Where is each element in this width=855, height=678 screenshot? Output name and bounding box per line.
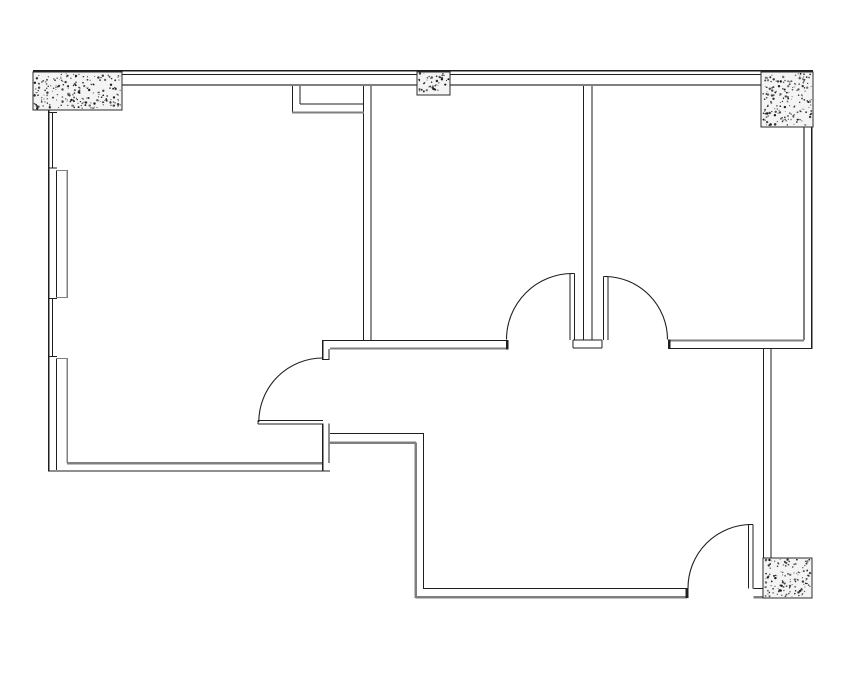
stipple-dot [767,590,769,592]
stipple-dot [102,94,104,96]
stipple-dot [772,592,773,593]
stipple-dot [798,571,800,573]
stipple-dot [102,90,104,92]
stipple-dot [809,572,811,574]
stipple-dot [443,75,444,76]
stipple-dot [794,124,795,125]
stipple-dot [99,79,101,81]
stipple-dot [775,111,777,113]
stipple-dot [790,80,792,82]
stipple-dot [86,97,87,98]
stipple-dot [783,590,784,591]
stipple-dot [792,566,794,568]
stipple-dot [799,77,801,79]
stipple-dot [766,87,767,88]
stipple-dot [805,561,806,562]
stipple-dot [795,75,797,77]
stipple-dot [62,84,64,86]
stipple-dot [803,99,805,101]
stipple-dot [771,102,773,104]
stipple-dot [49,106,51,108]
stipple-dot [776,91,777,92]
stipple-dot [75,76,76,77]
stipple-dot [110,84,112,86]
stipple-dot [790,113,791,114]
stipple-dot [428,76,429,77]
stipple-dot [120,90,121,91]
stipple-dot [83,76,85,78]
stipple-dot [85,102,87,104]
stipple-dot [432,87,433,88]
stipple-dot [765,561,766,562]
stipple-dot [769,595,771,597]
stipple-dot [37,94,39,96]
stipple-dot [109,76,111,78]
stipple-dot [53,78,54,79]
column-outline [417,72,450,95]
stipple-dot [762,93,764,95]
stipple-dot [809,100,810,101]
stipple-dot [73,85,74,86]
stipple-dot [784,575,786,577]
stipple-dot [112,88,113,89]
stipple-dot [61,88,63,90]
stipple-dot [53,87,55,89]
stipple-dot [93,92,94,93]
stipple-dot [120,76,121,77]
stipple-dot [783,564,785,566]
stipple-dot [67,93,69,95]
stipple-dot [779,105,781,107]
stipple-dot [809,116,811,118]
stipple-dot [418,79,420,81]
stipple-dot [800,119,801,120]
stipple-dot [56,100,57,101]
stipple-dot [809,586,810,587]
stipple-dot [794,83,796,85]
stipple-dot [804,591,805,592]
stipple-dot [774,114,776,116]
stipple-dot [803,73,805,75]
stipple-dot [38,106,39,107]
stipple-dot [83,98,84,99]
stipple-dot [792,87,793,88]
stipple-dot [57,86,59,88]
stipple-dot [783,586,785,588]
stipple-dot [446,80,447,81]
stipple-dot [802,109,803,110]
stipple-dot [787,101,789,103]
stipple-dot [38,90,39,91]
stipple-dot [803,80,804,81]
stipple-dot [795,590,796,591]
stipple-dot [109,101,111,103]
stipple-dot [93,102,95,104]
stipple-dot [784,583,786,585]
stipple-dot [768,559,770,561]
stipple-dot [77,103,78,104]
stipple-dot [442,77,443,78]
stipple-dot [767,79,769,81]
stipple-dot [766,116,768,118]
stipple-dot [73,74,74,75]
stipple-dot [60,76,61,77]
stipple-dot [54,79,56,81]
stipple-dot [100,77,101,78]
stipple-dot [89,104,91,106]
stipple-dot [764,98,766,100]
stipple-dot [81,98,82,99]
stipple-dot [438,82,439,83]
stipple-dot [78,87,80,89]
stipple-dot [777,108,778,109]
stipple-dot [784,561,786,563]
stipple-dot [792,584,793,585]
stipple-dot [110,99,111,100]
stipple-dot [771,585,772,586]
stipple-dot [802,95,803,96]
stipple-dot [788,564,789,565]
stipple-dot [787,80,789,82]
stipple-dot [789,591,791,593]
stipple-dot [765,86,766,87]
stipple-dot [68,87,69,88]
column-top-right [761,72,813,127]
stipple-dot [107,96,108,97]
stipple-dot [431,82,432,83]
stipple-dot [81,107,82,108]
stipple-dot [764,109,766,111]
stipple-dot [780,102,781,103]
stipple-dot [110,105,111,106]
stipple-dot [98,94,99,95]
stipple-dot [419,80,420,81]
stipple-dot [101,97,102,98]
stipple-dot [765,77,767,79]
stipple-dot [764,80,766,82]
stipple-dot [769,112,771,114]
stipple-dot [778,588,779,589]
stipple-dot [423,90,425,92]
stipple-dot [769,574,770,575]
stipple-dot [771,560,772,561]
stipple-dot [764,120,765,121]
stipple-dot [113,101,115,103]
stipple-dot [81,102,83,104]
stipple-dot [82,82,84,84]
stipple-dot [45,81,46,82]
stipple-dot [769,76,771,78]
stipple-dot [795,581,796,582]
stipple-dot [782,76,784,78]
stipple-dot [769,88,771,90]
stipple-dot [793,115,794,116]
stipple-dot [74,92,76,94]
stipple-dot [785,111,786,112]
stipple-dot [789,585,791,587]
stipple-dot [802,577,803,578]
stipple-dot [46,83,47,84]
stipple-dot [768,105,769,106]
stipple-dot [806,580,807,581]
stipple-dot [96,99,98,101]
stipple-dot [807,83,808,84]
stipple-dot [801,594,803,596]
stipple-dot [38,75,39,76]
stipple-dot [797,579,798,580]
stipple-dot [802,78,803,79]
stipple-dot [802,593,803,594]
stipple-dot [55,86,57,88]
stipple-dot [777,565,778,566]
stipple-dot [770,567,771,568]
stipple-dot [795,563,797,565]
stipple-dot [802,580,804,582]
stipple-dot [797,119,799,121]
stipple-dot [773,78,775,80]
stipple-dot [810,110,812,112]
door1-swing-arc [259,358,323,422]
stipple-dot [766,124,767,125]
stipple-dot [774,560,775,561]
stipple-dot [67,99,68,100]
stipple-dot [782,574,783,575]
stipple-dot [784,119,786,121]
stipple-dot [62,96,64,98]
stipple-dot [442,73,444,75]
stipple-dot [772,588,774,590]
stipple-dot [428,86,429,87]
stipple-dot [86,87,87,88]
stipple-dot [775,575,776,576]
stipple-dot [801,98,803,100]
stipple-dot [113,105,115,107]
stipple-dot [785,565,787,567]
stipple-dot [61,101,63,103]
stipple-dot [801,120,802,121]
door4-swing-arc [688,525,752,589]
stipple-dot [56,85,57,86]
stipple-dot [90,80,91,81]
stipple-dot [60,104,62,106]
floor-plan-canvas [0,0,855,678]
stipple-dot [799,572,800,573]
stipple-dot [59,79,60,80]
stipple-dot [92,83,94,85]
stipple-dot [794,87,795,88]
stipple-dot [796,559,798,561]
stipple-dot [778,110,779,111]
stipple-dot [799,110,801,112]
stipple-dot [775,92,777,94]
stipple-dot [36,77,38,79]
stipple-dot [74,89,76,91]
stipple-dot [771,581,772,582]
stipple-dot [805,582,807,584]
stipple-dot [784,116,786,118]
stipple-dot [784,106,786,108]
stipple-dot [118,75,119,76]
stipple-dot [788,119,789,120]
stipple-dot [799,102,800,103]
stipple-dot [777,80,779,82]
stipple-dot [806,578,808,580]
stipple-dot [806,87,808,89]
stipple-dot [42,80,44,82]
stipple-dot [774,577,776,579]
stipple-dot [419,72,421,74]
stipple-dot [70,77,72,79]
stipple-dot [48,76,49,77]
stipple-dot [66,73,67,74]
stipple-dot [118,79,119,80]
stipple-dot [84,85,85,86]
stipple-dot [806,570,808,572]
stipple-dot [426,80,427,81]
stipple-dot [46,94,48,96]
stipple-dot [779,111,781,113]
stipple-dot [56,77,58,79]
stipple-dot [419,90,421,92]
stipple-dot [787,96,789,98]
stipple-dot [776,80,777,81]
stipple-dot [790,119,791,120]
stipple-dot [773,575,775,577]
stipple-dot [811,99,812,100]
stipple-dot [87,87,88,88]
stipple-dot [802,85,804,87]
stipple-dot [436,75,438,77]
stipple-dot [798,94,800,96]
stipple-dot [47,102,48,103]
stipple-dot [429,86,431,88]
stipple-dot [786,559,788,561]
stipple-dot [776,105,778,107]
stipple-dot [767,91,768,92]
stipple-dot [117,94,119,96]
stipple-dot [117,105,119,107]
stipple-dot [786,594,788,596]
stipple-dot [113,96,115,98]
stipple-dot [46,92,48,94]
stipple-dot [114,79,116,81]
stipple-dot [793,563,795,565]
stipple-dot [78,74,79,75]
stipple-dot [117,99,119,101]
stipple-dot [765,581,767,583]
stipple-dot [804,87,805,88]
stipple-dot [83,101,84,102]
stipple-dot [447,78,449,80]
stipple-dot [437,85,438,86]
stipple-dot [41,100,42,101]
stipple-dot [784,89,786,91]
stipple-dot [776,575,777,576]
stipple-dot [67,105,68,106]
stipple-dot [769,124,771,126]
stipple-dot [780,585,782,587]
stipple-dot [803,76,804,77]
stipple-dot [35,104,37,106]
stipple-dot [789,105,790,106]
stipple-dot [803,584,804,585]
stipple-dot [105,99,107,101]
stipple-dot [61,74,62,75]
stipple-dot [810,104,811,105]
stipple-dot [97,107,98,108]
stipple-dot [81,105,82,106]
stipple-dot [768,575,770,577]
stipple-dot [789,112,790,113]
stipple-dot [75,84,77,86]
stipple-dot [794,573,795,574]
stipple-dot [783,82,784,83]
stipple-dot [774,586,775,587]
stipple-dot [794,593,796,595]
stipple-dot [765,595,767,597]
stipple-dot [765,573,767,575]
stipple-dot [444,84,446,86]
stipple-dot [808,575,810,577]
stipple-dot [91,84,93,86]
stipple-dot [789,83,791,85]
stipple-dot [785,95,787,97]
stipple-dot [103,102,104,103]
door2-swing-arc [507,274,573,340]
stipple-dot [787,85,789,87]
stipple-dot [806,100,808,102]
stipple-dot [766,97,768,99]
stipple-dot [427,77,429,79]
stipple-dot [788,593,789,594]
stipple-dot [103,104,104,105]
stipple-dot [780,80,782,82]
stipple-dot [806,563,808,565]
stipple-dot [787,573,789,575]
stipple-dot [97,92,98,93]
stipple-dot [431,76,433,78]
stipple-dot [781,595,782,596]
stipple-dot [38,83,39,84]
stipple-dot [67,85,69,87]
stipple-dot [766,121,768,123]
stipple-dot [790,579,791,580]
stipple-dot [88,97,90,99]
stipple-dot [94,107,95,108]
stipple-dot [805,125,806,126]
stipple-dot [790,581,791,582]
stipple-dot [769,592,770,593]
stipple-dot [98,91,100,93]
stipple-dot [47,86,48,87]
stipple-dot [763,119,764,120]
stipple-dot [72,94,74,96]
stipple-dot [426,89,428,91]
stipple-dot [114,102,115,103]
stipple-dot [766,113,768,115]
stipple-dot [764,111,765,112]
stipple-dot [767,93,769,95]
stipple-dot [782,88,784,90]
stipple-dot [789,587,790,588]
stipple-dot [77,99,78,100]
stipple-dot [771,75,772,76]
stipple-dot [797,111,799,113]
column-outline [33,72,122,110]
stipple-dot [788,92,789,93]
stipple-dot [791,99,792,100]
stipple-dot [782,101,783,102]
